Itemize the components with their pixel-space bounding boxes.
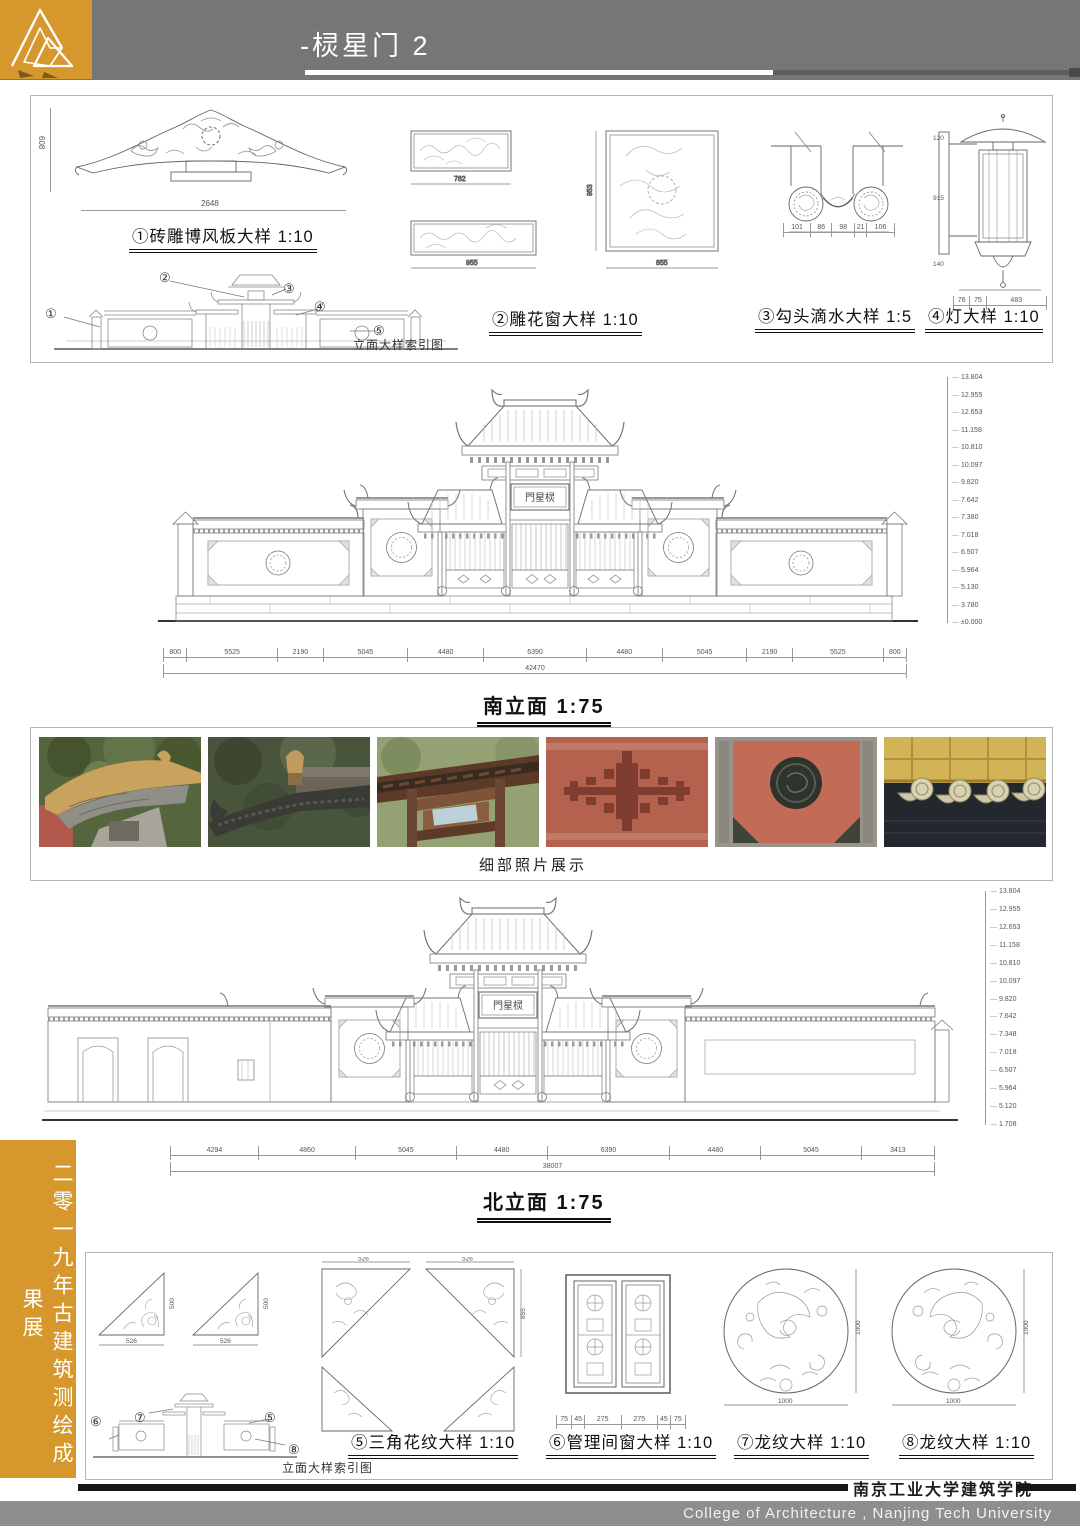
- svg-text:1000: 1000: [1023, 1320, 1030, 1335]
- detail2-label: ②雕花窗大样 1:10: [489, 306, 642, 336]
- svg-text:953: 953: [587, 184, 594, 196]
- photo-caption: 细部照片展示: [479, 854, 587, 875]
- dragon-detail-2: 1000 1000: [882, 1259, 1030, 1419]
- header-rule-cap: [1069, 68, 1080, 77]
- south-elevation-label: 南立面 1:75: [477, 690, 611, 727]
- tile-ends-drawing: [761, 124, 916, 259]
- south-level-strip: 13.80412.95512.65311.15810.81010.0979.82…: [930, 374, 1022, 626]
- north-dims: 42944860504544806390448050453413: [170, 1146, 935, 1160]
- triangle-detail-group: 526 526 855: [314, 1257, 526, 1437]
- callout-6: ⑥: [90, 1415, 102, 1428]
- svg-text:1000: 1000: [778, 1398, 793, 1405]
- bargeboard-drawing: [71, 103, 351, 203]
- footer-school-cn: 南京工业大学建筑学院: [853, 1476, 1033, 1500]
- svg-text:1000: 1000: [946, 1398, 961, 1405]
- logo: [0, 0, 92, 79]
- callout-1: ①: [45, 307, 57, 320]
- photo-brick-relief: [546, 737, 708, 847]
- svg-text:526: 526: [462, 1257, 473, 1263]
- svg-text:915: 915: [933, 195, 944, 202]
- photo-glazed-tiles: [884, 737, 1046, 847]
- footer-bar-right: [1016, 1484, 1076, 1491]
- bargeboard-hdim-line: [81, 210, 346, 211]
- callout-2: ②: [159, 271, 171, 284]
- north-elevation-label: 北立面 1:75: [477, 1186, 611, 1223]
- detail6-label: ⑥管理间窗大样 1:10: [546, 1429, 716, 1459]
- footer-school-en: College of Architecture , Nanjing Tech U…: [683, 1505, 1052, 1522]
- detail7-label: ⑦龙纹大样 1:10: [734, 1429, 869, 1459]
- south-dims: 8005525219050454480639044805045219055258…: [163, 648, 907, 662]
- svg-text:855: 855: [656, 260, 668, 267]
- bottom-details-panel: 526 500 526 500: [85, 1252, 1053, 1480]
- lamp-drawing: 120 915 140: [929, 114, 1047, 294]
- svg-text:526: 526: [220, 1338, 231, 1345]
- north-dim-total: 38007: [170, 1162, 935, 1176]
- footer-gray-bar: College of Architecture , Nanjing Tech U…: [0, 1501, 1080, 1526]
- svg-text:1000: 1000: [855, 1320, 862, 1335]
- svg-text:855: 855: [520, 1308, 526, 1319]
- window-dims: 75452752754575: [556, 1415, 686, 1429]
- svg-text:140: 140: [933, 261, 944, 268]
- page-title: -棂星门 2: [300, 24, 431, 63]
- detail8-label: ⑧龙纹大样 1:10: [899, 1429, 1034, 1459]
- window-detail-drawing: [558, 1269, 683, 1409]
- carved-windows-drawing: 782 955 953 855: [406, 126, 726, 286]
- exhibition-banner: 二零一九年古建筑测绘成果展: [0, 1140, 76, 1478]
- tile-dims: 101869821106: [783, 223, 895, 237]
- callout-4: ④: [314, 300, 326, 313]
- bargeboard-vdim-line: [50, 108, 51, 192]
- header-bar: -棂星门 2: [0, 0, 1080, 80]
- detail3-label: ③勾头滴水大样 1:5: [755, 303, 915, 333]
- photo-roof-corner: [39, 737, 201, 847]
- bargeboard-vdim: 608: [37, 136, 46, 149]
- logo-a-icon: [0, 0, 92, 79]
- triangle-detail-2: 526 500: [188, 1265, 273, 1353]
- photo-upturned-eave: [208, 737, 370, 847]
- callout-3: ③: [283, 282, 295, 295]
- bottom-index-drawing: [89, 1391, 304, 1471]
- photo-gate-timberwork: [377, 737, 539, 847]
- callout-5b: ⑤: [264, 1411, 276, 1424]
- index-caption: 立面大样索引图: [353, 336, 444, 353]
- svg-text:955: 955: [466, 260, 478, 267]
- callout-8: ⑧: [288, 1443, 300, 1456]
- plaque-text: 門星棂: [525, 491, 555, 504]
- north-elevation-drawing: 門星棂: [30, 880, 970, 1130]
- triangle-detail-1: 526 500: [94, 1265, 179, 1353]
- south-dim-total: 42470: [163, 664, 907, 678]
- svg-text:500: 500: [263, 1298, 270, 1309]
- header-rule: [773, 70, 1069, 75]
- top-details-panel: 608 2648 ①砖雕博风板大样 1:10: [30, 95, 1053, 363]
- callout-7: ⑦: [134, 1411, 146, 1424]
- svg-text:500: 500: [169, 1298, 176, 1309]
- title-underline: [305, 70, 773, 75]
- presentation-sheet: -棂星门 2 608 2648 ①砖雕: [0, 0, 1080, 1526]
- dragon-detail-1: 1000 1000: [714, 1259, 862, 1419]
- bargeboard-hdim: 2648: [201, 199, 219, 208]
- photo-wall-medallion: [715, 737, 877, 847]
- banner-text: 二零一九年古建筑测绘成果展: [0, 1154, 76, 1478]
- bottom-index-caption: 立面大样索引图: [282, 1459, 373, 1476]
- svg-text:526: 526: [358, 1257, 369, 1263]
- footer-bar-left: [78, 1484, 848, 1491]
- plaque-text-north: 門星棂: [493, 999, 523, 1012]
- north-level-strip: 13.80412.95512.65311.15810.81010.0979.82…: [968, 888, 1060, 1128]
- photo-strip-panel: 细部照片展示: [30, 727, 1053, 881]
- detail4-label: ④灯大样 1:10: [925, 303, 1043, 333]
- south-elevation-drawing: 門星棂: [140, 372, 940, 628]
- detail1-label: ①砖雕博风板大样 1:10: [129, 223, 317, 253]
- detail5-label: ⑤三角花纹大样 1:10: [348, 1429, 518, 1459]
- svg-text:782: 782: [454, 176, 466, 183]
- svg-text:120: 120: [933, 135, 944, 142]
- svg-text:526: 526: [126, 1338, 137, 1345]
